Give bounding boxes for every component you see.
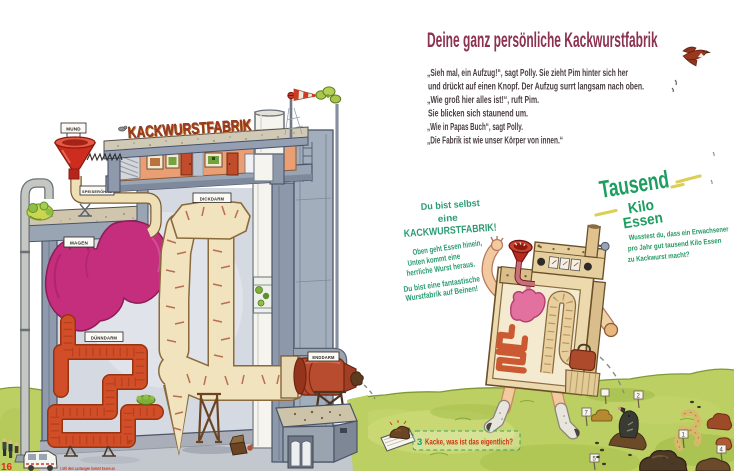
svg-text:eine: eine	[437, 213, 458, 225]
svg-text:„Die Fabrik ist wie unser Körp: „Die Fabrik ist wie unser Körper von inn…	[427, 136, 563, 147]
svg-text:DÜNNDARM: DÜNNDARM	[91, 336, 118, 341]
svg-text:ENDDARM: ENDDARM	[312, 355, 335, 360]
svg-text:und drückt auf einen Knopf. De: und drückt auf einen Knopf. Der Aufzug s…	[428, 82, 644, 93]
svg-text:„Sieh mal, ein Aufzug!“, sagt: „Sieh mal, ein Aufzug!“, sagt Polly. Sie…	[427, 68, 628, 79]
svg-text:Sie blicken sich staunend um.: Sie blicken sich staunend um.	[428, 109, 528, 120]
svg-text:Tausend: Tausend	[598, 166, 671, 204]
svg-text:1 Mit dem Lastwagen kommt Esse: 1 Mit dem Lastwagen kommt Essen an	[60, 466, 115, 471]
svg-text:MAGEN: MAGEN	[70, 241, 89, 246]
svg-text:KACKWURSTFABRIK!: KACKWURSTFABRIK!	[403, 222, 497, 240]
svg-text:„Wie in Papas Buch“, sagt Poll: „Wie in Papas Buch“, sagt Polly.	[427, 122, 523, 133]
svg-text:Kacke, was ist das eigentlich?: Kacke, was ist das eigentlich?	[425, 437, 513, 447]
svg-text:DICKDARM: DICKDARM	[200, 197, 225, 202]
svg-text:Du bist selbst: Du bist selbst	[420, 198, 480, 213]
svg-text:„Wie groß hier alles ist!“, ru: „Wie groß hier alles ist!“, ruft Pim.	[427, 95, 539, 106]
svg-text:MUND: MUND	[66, 127, 81, 132]
svg-text:16: 16	[1, 462, 13, 471]
svg-text:3: 3	[417, 437, 422, 448]
svg-text:Deine ganz persönliche Kackwur: Deine ganz persönliche Kackwurstfabrik	[427, 28, 658, 52]
